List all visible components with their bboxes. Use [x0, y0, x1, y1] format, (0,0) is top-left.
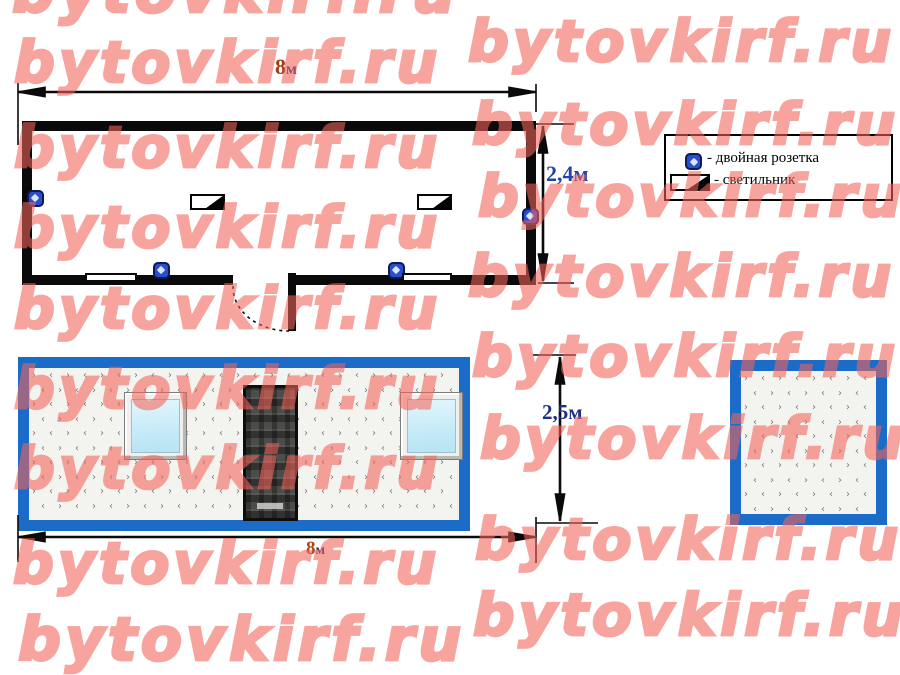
watermark-text: bytovkirf.ru: [473, 586, 900, 644]
legend-socket-label: - двойная розетка: [707, 150, 819, 167]
dim-label-elev-height: 2,5м: [542, 400, 583, 425]
window-glass: [131, 399, 180, 453]
dim-arrow: [538, 254, 547, 281]
legend-light-label: - светильник: [714, 172, 795, 189]
hatch-pattern: ›‹›‹›‹›‹‹›‹›‹›‹›‹›‹›‹›‹‹›‹›‹›‹›‹›‹›‹›‹‹›…: [741, 371, 876, 514]
watermark-text: bytovkirf.ru: [12, 0, 459, 22]
watermark-text: bytovkirf.ru: [14, 281, 441, 338]
wall-window-slot: [402, 273, 452, 282]
double-socket-icon: [522, 208, 539, 225]
double-socket-icon: [153, 262, 170, 279]
legend-box: - двойная розетка - светильник: [664, 134, 893, 201]
watermark-layer: bytovkirf.rubytovkirf.rubytovkirf.rubyto…: [0, 0, 900, 675]
dim-label-elev-width: 8м: [306, 538, 325, 560]
door-opening: [233, 274, 288, 286]
ceiling-light-icon: [417, 194, 452, 210]
dim-arrow: [509, 532, 536, 541]
dim-arrow: [18, 532, 45, 541]
side-elevation: ›‹›‹›‹›‹‹›‹›‹›‹›‹›‹›‹›‹‹›‹›‹›‹›‹›‹›‹›‹‹›…: [730, 360, 887, 525]
dim-label-plan-width: 8м: [275, 54, 297, 80]
window-glass: [407, 399, 456, 453]
window: [400, 392, 463, 460]
dim-arrow: [555, 357, 564, 384]
watermark-text: bytovkirf.ru: [14, 35, 441, 92]
watermark-text: bytovkirf.ru: [468, 14, 895, 71]
door-swing-arc: [233, 286, 289, 331]
dim-arrow: [538, 126, 547, 153]
dim-arrow: [555, 494, 564, 521]
entrance-door: [243, 385, 298, 521]
ceiling-light-icon: [670, 174, 710, 191]
double-socket-icon: [685, 153, 702, 170]
floor-plan-outline: [22, 121, 536, 285]
diagram-canvas: ›‹›‹›‹›‹›‹›‹›‹›‹›‹›‹›‹›‹›‹›‹›‹›‹›‹›‹›‹›‹…: [0, 0, 900, 675]
dimension-lines-layer: [0, 0, 900, 675]
dim-label-plan-height: 2,4м: [546, 161, 589, 187]
double-socket-icon: [27, 190, 44, 207]
dim-arrow: [18, 87, 45, 96]
window: [124, 392, 187, 460]
watermark-text: bytovkirf.ru: [18, 610, 465, 670]
watermark-text: bytovkirf.ru: [13, 536, 440, 593]
door-leaf: [288, 273, 296, 331]
wall-window-slot: [85, 273, 137, 282]
ceiling-light-icon: [190, 194, 225, 210]
dim-arrow: [509, 87, 536, 96]
